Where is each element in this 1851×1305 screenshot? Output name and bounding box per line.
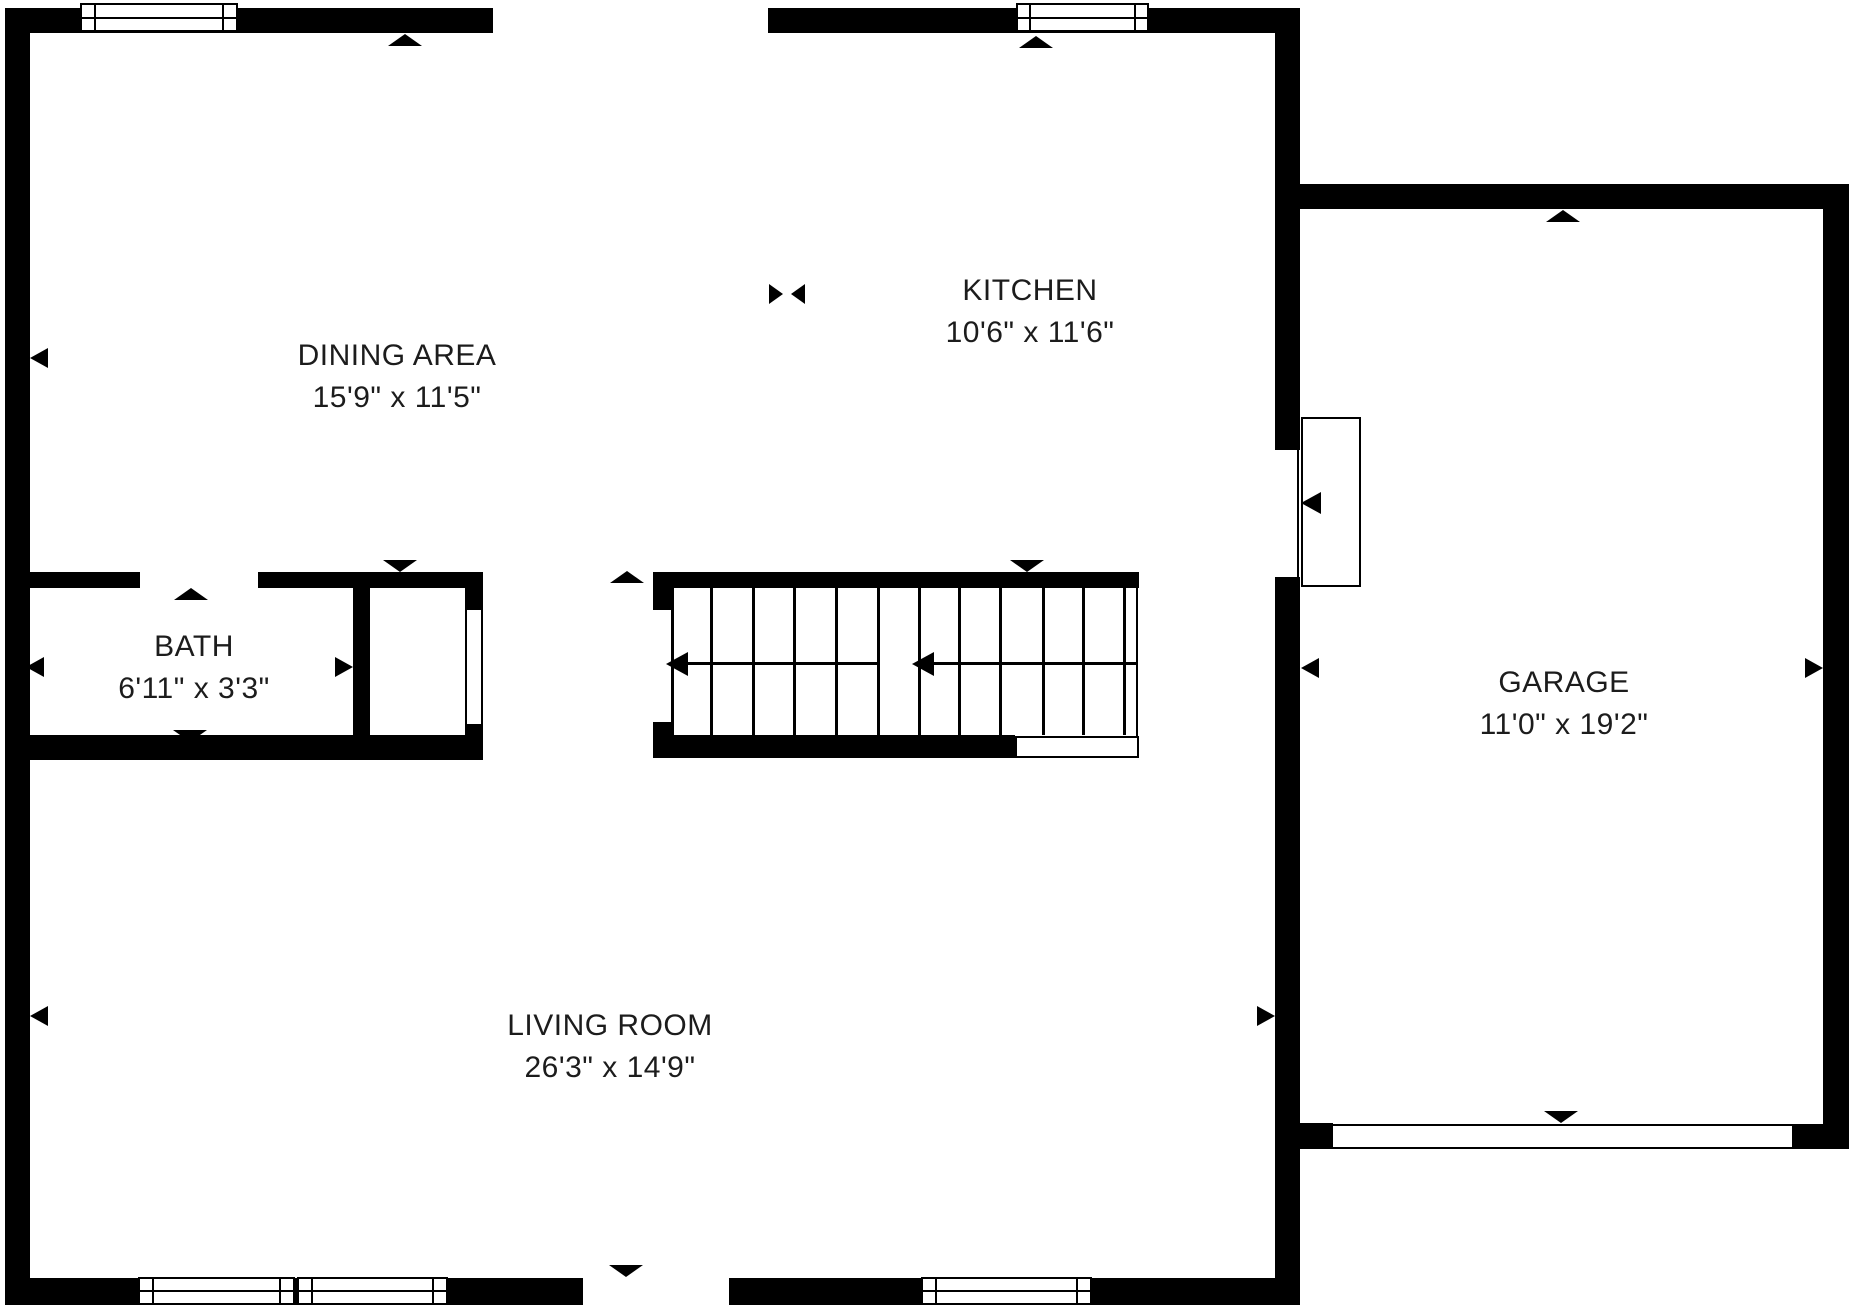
room-name: KITCHEN (946, 270, 1115, 312)
window-cap (1029, 5, 1031, 30)
wall-marker-up-icon (1546, 210, 1580, 222)
closet-door-opening (465, 610, 483, 724)
house-right-wall-upper (1275, 8, 1300, 450)
room-label-garage: GARAGE 11'0" x 19'2" (1480, 662, 1649, 746)
living-window-2 (297, 1277, 448, 1305)
room-dims: 6'11" x 3'3" (118, 668, 270, 710)
window-mullion (82, 17, 236, 19)
garage-right-wall (1823, 184, 1849, 1149)
room-name: GARAGE (1480, 662, 1649, 704)
living-window-1 (138, 1277, 295, 1305)
room-dims: 15'9" x 11'5" (298, 377, 497, 419)
top-wall-left (5, 8, 493, 33)
stair-bottom-wall (653, 735, 1015, 758)
stair-direction-line (934, 662, 1138, 665)
stair-landing (1015, 736, 1139, 758)
wall-marker-right-icon (335, 657, 353, 677)
room-label-kitchen: KITCHEN 10'6" x 11'6" (946, 270, 1115, 354)
bath-top-wall-left (30, 572, 140, 588)
wall-marker-up-icon (388, 34, 422, 46)
bath-closet-divider-wall (353, 572, 370, 760)
room-label-bath: BATH 6'11" x 3'3" (118, 626, 270, 710)
window-cap (222, 5, 224, 30)
window-cap (1134, 5, 1136, 30)
window-mullion (1018, 17, 1147, 19)
window-cap (432, 1279, 434, 1303)
wall-marker-down-icon (609, 1265, 643, 1277)
stair-top-wall (653, 572, 1139, 588)
bowtie-marker-icon (791, 284, 805, 304)
wall-marker-down-icon (383, 560, 417, 572)
wall-marker-down-icon (173, 730, 207, 742)
wall-marker-left-icon (1301, 658, 1319, 678)
room-dims: 11'0" x 19'2" (1480, 704, 1649, 746)
wall-marker-up-icon (174, 588, 208, 600)
entry-door-swing-arrow-icon (1301, 492, 1321, 514)
window-cap (279, 1279, 281, 1303)
wall-marker-down-icon (1544, 1111, 1578, 1123)
room-label-living: LIVING ROOM 26'3" x 14'9" (507, 1005, 713, 1089)
dining-window (80, 3, 238, 32)
living-window-3 (921, 1277, 1092, 1305)
room-dims: 26'3" x 14'9" (507, 1047, 713, 1089)
wall-marker-left-icon (30, 348, 48, 368)
bath-bottom-wall (5, 735, 483, 760)
room-name: LIVING ROOM (507, 1005, 713, 1047)
window-cap (311, 1279, 313, 1303)
wall-marker-up-icon (610, 571, 644, 583)
bowtie-marker-icon (769, 284, 783, 304)
wall-marker-up-icon (1019, 36, 1053, 48)
wall-marker-down-icon (1010, 560, 1044, 572)
garage-door-stub-left (1300, 1123, 1333, 1149)
window-cap (94, 5, 96, 30)
stair-direction-line (688, 662, 878, 665)
closet-top-wall (370, 572, 483, 588)
stair-stub-top-left (653, 588, 671, 610)
wall-marker-right-icon (1805, 658, 1823, 678)
garage-door-corner-right (1792, 1124, 1849, 1149)
closet-door-stub-top (465, 588, 483, 610)
garage-door (1333, 1124, 1792, 1149)
house-right-wall-lower (1275, 577, 1300, 1305)
wall-marker-left-icon (26, 657, 44, 677)
window-mullion (140, 1290, 293, 1292)
wall-marker-right-icon (1257, 1006, 1275, 1026)
window-cap (935, 1279, 937, 1303)
window-cap (1076, 1279, 1078, 1303)
room-label-dining: DINING AREA 15'9" x 11'5" (298, 335, 497, 419)
window-mullion (923, 1290, 1090, 1292)
window-mullion (299, 1290, 446, 1292)
room-dims: 10'6" x 11'6" (946, 312, 1115, 354)
stair-direction-arrow-icon (666, 652, 688, 676)
floor-plan: DINING AREA 15'9" x 11'5" KITCHEN 10'6" … (0, 0, 1851, 1305)
room-name: DINING AREA (298, 335, 497, 377)
garage-top-wall (1298, 184, 1849, 209)
wall-marker-left-icon (30, 1006, 48, 1026)
door-opening-jamb-line (1297, 450, 1299, 577)
room-name: BATH (118, 626, 270, 668)
window-cap (152, 1279, 154, 1303)
kitchen-window (1016, 3, 1149, 32)
stair-direction-arrow-icon (912, 652, 934, 676)
